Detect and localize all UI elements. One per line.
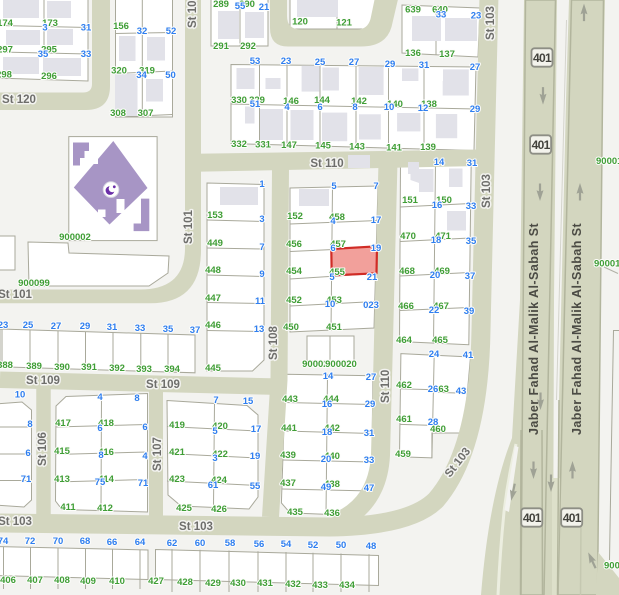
- svg-text:139: 139: [420, 142, 436, 153]
- svg-text:33: 33: [436, 10, 447, 21]
- svg-text:39: 39: [464, 306, 475, 317]
- svg-text:9: 9: [259, 269, 264, 280]
- svg-text:436: 436: [324, 508, 340, 519]
- svg-text:7: 7: [213, 395, 218, 406]
- svg-text:15: 15: [243, 396, 254, 407]
- svg-text:151: 151: [402, 195, 419, 206]
- svg-text:900002: 900002: [59, 232, 91, 243]
- svg-text:470: 470: [400, 231, 416, 242]
- svg-text:34: 34: [136, 70, 147, 81]
- svg-text:20: 20: [430, 270, 441, 281]
- svg-text:308: 308: [110, 108, 126, 119]
- svg-text:St 109: St 109: [146, 379, 180, 391]
- svg-text:St 103: St 103: [179, 521, 213, 533]
- svg-text:900099: 900099: [18, 278, 50, 289]
- svg-text:435: 435: [287, 507, 304, 518]
- svg-text:451: 451: [326, 322, 343, 333]
- svg-text:4: 4: [97, 392, 103, 403]
- svg-text:425: 425: [176, 503, 193, 514]
- svg-text:401: 401: [523, 511, 542, 525]
- svg-text:16: 16: [432, 200, 443, 211]
- svg-text:27: 27: [366, 372, 377, 383]
- svg-text:289: 289: [213, 0, 229, 10]
- svg-text:48: 48: [366, 541, 377, 552]
- svg-text:401: 401: [532, 138, 551, 152]
- svg-text:448: 448: [205, 265, 221, 276]
- svg-text:Jaber Fahad Al-Malik Al-Sabah: Jaber Fahad Al-Malik Al-Sabah St: [570, 222, 584, 435]
- svg-text:27: 27: [349, 57, 360, 68]
- svg-text:21: 21: [259, 2, 270, 13]
- svg-text:423: 423: [169, 474, 185, 485]
- svg-text:445: 445: [205, 363, 222, 374]
- svg-text:35: 35: [466, 236, 477, 247]
- svg-text:5: 5: [329, 272, 335, 283]
- svg-text:33: 33: [364, 455, 375, 466]
- svg-text:3: 3: [259, 214, 264, 225]
- svg-text:52: 52: [308, 540, 319, 551]
- svg-text:14: 14: [434, 157, 445, 168]
- svg-text:401: 401: [563, 511, 582, 525]
- svg-text:410: 410: [109, 576, 125, 587]
- svg-text:4: 4: [142, 451, 148, 462]
- svg-text:43: 43: [456, 386, 467, 397]
- svg-text:37: 37: [465, 271, 476, 282]
- svg-text:90001: 90001: [596, 156, 619, 167]
- svg-text:St 103: St 103: [485, 6, 497, 40]
- svg-text:14: 14: [323, 371, 334, 382]
- svg-text:St 120: St 120: [2, 94, 36, 106]
- svg-text:428: 428: [177, 577, 193, 588]
- svg-text:320: 320: [111, 66, 127, 77]
- svg-text:145: 145: [315, 141, 332, 152]
- svg-text:10: 10: [384, 102, 395, 113]
- svg-text:71: 71: [138, 478, 149, 489]
- svg-text:49: 49: [321, 482, 332, 493]
- svg-text:8: 8: [134, 393, 139, 404]
- svg-text:64: 64: [135, 537, 146, 548]
- svg-text:23: 23: [471, 11, 482, 22]
- svg-text:152: 152: [287, 211, 303, 222]
- svg-text:53: 53: [250, 56, 261, 67]
- svg-text:459: 459: [395, 449, 411, 460]
- svg-text:454: 454: [286, 266, 303, 277]
- svg-text:31: 31: [81, 23, 92, 34]
- svg-text:37: 37: [190, 325, 201, 336]
- svg-text:456: 456: [286, 239, 302, 250]
- svg-text:411: 411: [60, 502, 76, 513]
- svg-text:St 101: St 101: [183, 210, 195, 244]
- svg-text:31: 31: [107, 322, 118, 333]
- svg-text:11: 11: [255, 296, 266, 307]
- svg-text:50: 50: [165, 70, 176, 81]
- svg-text:452: 452: [286, 295, 302, 306]
- svg-text:8: 8: [27, 419, 32, 430]
- svg-text:419: 419: [169, 420, 185, 431]
- svg-text:465: 465: [432, 335, 449, 346]
- svg-text:639: 639: [405, 5, 421, 16]
- svg-text:434: 434: [339, 580, 356, 591]
- svg-text:4: 4: [284, 102, 290, 113]
- svg-text:29: 29: [365, 399, 376, 410]
- svg-text:466: 466: [398, 301, 414, 312]
- svg-text:330: 330: [231, 95, 247, 106]
- svg-text:464: 464: [396, 335, 413, 346]
- svg-text:58: 58: [225, 538, 236, 549]
- svg-text:12: 12: [418, 103, 429, 114]
- svg-text:13: 13: [254, 324, 265, 335]
- svg-text:Jaber Fahad Al-Malik Al-Sabah: Jaber Fahad Al-Malik Al-Sabah St: [527, 222, 541, 435]
- svg-text:3: 3: [42, 23, 47, 34]
- svg-text:18: 18: [322, 427, 333, 438]
- svg-text:10: 10: [15, 390, 26, 401]
- svg-text:6: 6: [330, 243, 335, 254]
- svg-text:29: 29: [80, 321, 91, 332]
- svg-text:443: 443: [282, 394, 298, 405]
- svg-text:41: 41: [463, 350, 474, 361]
- svg-text:50: 50: [336, 540, 347, 551]
- svg-text:6: 6: [317, 102, 322, 113]
- svg-text:St 110: St 110: [380, 370, 392, 403]
- svg-text:31: 31: [364, 428, 375, 439]
- svg-text:61: 61: [208, 480, 219, 491]
- svg-text:28: 28: [428, 417, 439, 428]
- svg-text:449: 449: [207, 238, 223, 249]
- svg-text:291: 291: [213, 41, 230, 52]
- svg-text:St 107: St 107: [152, 437, 164, 471]
- svg-text:7: 7: [373, 181, 378, 192]
- svg-text:433: 433: [312, 580, 328, 591]
- svg-text:450: 450: [283, 322, 299, 333]
- svg-text:St 106: St 106: [37, 432, 49, 466]
- svg-text:27: 27: [470, 62, 481, 73]
- svg-text:17: 17: [251, 424, 262, 435]
- svg-text:298: 298: [0, 70, 12, 81]
- svg-text:17: 17: [371, 215, 382, 226]
- svg-text:75: 75: [95, 477, 106, 488]
- svg-text:174: 174: [0, 18, 14, 29]
- svg-text:21: 21: [367, 272, 378, 283]
- svg-text:120: 120: [292, 17, 308, 28]
- svg-text:27: 27: [51, 321, 62, 332]
- svg-text:68: 68: [80, 536, 91, 547]
- svg-text:74: 74: [0, 536, 9, 547]
- svg-text:427: 427: [148, 576, 164, 587]
- svg-text:421: 421: [169, 447, 186, 458]
- svg-text:394: 394: [164, 364, 181, 375]
- svg-text:447: 447: [205, 293, 221, 304]
- svg-text:147: 147: [281, 140, 297, 151]
- svg-text:23: 23: [281, 56, 292, 67]
- svg-text:388: 388: [0, 360, 13, 371]
- svg-text:56: 56: [254, 539, 265, 550]
- svg-text:441: 441: [281, 423, 298, 434]
- svg-text:St 101: St 101: [187, 0, 199, 28]
- svg-text:7: 7: [259, 242, 264, 253]
- svg-text:153: 153: [207, 210, 223, 221]
- svg-text:5: 5: [212, 426, 218, 437]
- svg-text:10: 10: [325, 299, 336, 310]
- svg-text:389: 389: [26, 361, 42, 372]
- svg-text:20: 20: [321, 454, 332, 465]
- svg-text:413: 413: [54, 474, 70, 485]
- svg-text:31: 31: [419, 60, 430, 71]
- svg-text:137: 137: [439, 49, 455, 60]
- svg-text:136: 136: [405, 48, 421, 59]
- svg-text:4: 4: [330, 216, 336, 227]
- svg-text:437: 437: [280, 478, 296, 489]
- svg-text:70: 70: [53, 536, 64, 547]
- svg-text:55: 55: [235, 1, 246, 12]
- svg-text:412: 412: [97, 503, 113, 514]
- svg-text:8: 8: [352, 102, 357, 113]
- svg-text:430: 430: [230, 578, 246, 589]
- svg-text:307: 307: [138, 108, 154, 119]
- svg-text:31: 31: [467, 158, 478, 169]
- svg-text:16: 16: [322, 399, 333, 410]
- svg-text:18: 18: [431, 235, 442, 246]
- svg-text:390: 390: [54, 362, 70, 373]
- svg-text:71: 71: [21, 474, 32, 485]
- svg-text:47: 47: [364, 483, 375, 494]
- svg-text:32: 32: [137, 26, 148, 37]
- svg-text:22: 22: [429, 305, 440, 316]
- svg-text:6: 6: [97, 423, 102, 434]
- svg-text:446: 446: [205, 320, 221, 331]
- svg-text:3: 3: [212, 453, 217, 464]
- svg-text:8: 8: [98, 450, 103, 461]
- svg-text:St 103: St 103: [481, 174, 493, 208]
- svg-text:62: 62: [167, 538, 178, 549]
- svg-text:409: 409: [80, 576, 96, 587]
- svg-text:90001: 90001: [594, 259, 619, 270]
- svg-text:26: 26: [428, 384, 439, 395]
- svg-text:415: 415: [54, 446, 71, 457]
- svg-text:St 110: St 110: [310, 158, 343, 170]
- svg-text:392: 392: [109, 363, 125, 374]
- svg-text:1: 1: [259, 179, 265, 190]
- svg-text:St 103: St 103: [0, 516, 32, 528]
- svg-text:143: 143: [349, 142, 365, 153]
- svg-text:406: 406: [0, 575, 16, 586]
- svg-text:401: 401: [533, 51, 552, 65]
- svg-text:439: 439: [280, 450, 296, 461]
- svg-text:66: 66: [107, 537, 118, 548]
- svg-text:90001: 90001: [604, 561, 619, 572]
- svg-text:St 108: St 108: [268, 326, 280, 360]
- svg-text:429: 429: [205, 578, 221, 589]
- svg-text:25: 25: [23, 320, 34, 331]
- svg-text:24: 24: [429, 349, 440, 360]
- svg-text:6: 6: [25, 448, 30, 459]
- svg-text:54: 54: [281, 539, 292, 550]
- svg-text:332: 332: [231, 139, 247, 150]
- svg-text:121: 121: [336, 18, 353, 29]
- svg-text:33: 33: [135, 323, 146, 334]
- svg-text:156: 156: [113, 21, 129, 32]
- svg-text:51: 51: [250, 99, 261, 110]
- svg-text:55: 55: [250, 481, 261, 492]
- svg-text:426: 426: [211, 504, 227, 515]
- svg-text:461: 461: [396, 414, 413, 425]
- svg-text:292: 292: [240, 41, 256, 52]
- svg-text:35: 35: [163, 324, 174, 335]
- svg-text:5: 5: [331, 181, 337, 192]
- svg-text:23: 23: [0, 320, 8, 331]
- svg-text:St 101: St 101: [0, 289, 33, 301]
- svg-text:33: 33: [466, 201, 477, 212]
- svg-text:6: 6: [142, 422, 147, 433]
- svg-text:297: 297: [0, 45, 13, 56]
- svg-text:19: 19: [250, 451, 261, 462]
- svg-text:25: 25: [315, 57, 326, 68]
- svg-text:331: 331: [255, 140, 272, 151]
- svg-text:35: 35: [38, 49, 49, 60]
- svg-text:St 109: St 109: [26, 375, 60, 387]
- svg-text:432: 432: [285, 579, 301, 590]
- svg-text:72: 72: [25, 536, 36, 547]
- svg-text:900020: 900020: [325, 359, 357, 370]
- svg-text:462: 462: [396, 380, 412, 391]
- svg-text:29: 29: [470, 104, 481, 115]
- svg-text:431: 431: [257, 578, 274, 589]
- svg-text:33: 33: [81, 49, 92, 60]
- svg-text:296: 296: [41, 71, 57, 82]
- svg-text:393: 393: [136, 364, 152, 375]
- svg-text:29: 29: [385, 59, 396, 70]
- svg-text:407: 407: [27, 575, 43, 586]
- svg-text:60: 60: [195, 538, 206, 549]
- svg-text:52: 52: [166, 26, 177, 37]
- svg-text:468: 468: [399, 266, 415, 277]
- svg-text:141: 141: [386, 143, 403, 154]
- svg-text:417: 417: [55, 418, 71, 429]
- svg-text:408: 408: [54, 575, 70, 586]
- svg-text:19: 19: [371, 243, 382, 254]
- svg-text:391: 391: [81, 362, 98, 373]
- svg-text:023: 023: [363, 300, 379, 311]
